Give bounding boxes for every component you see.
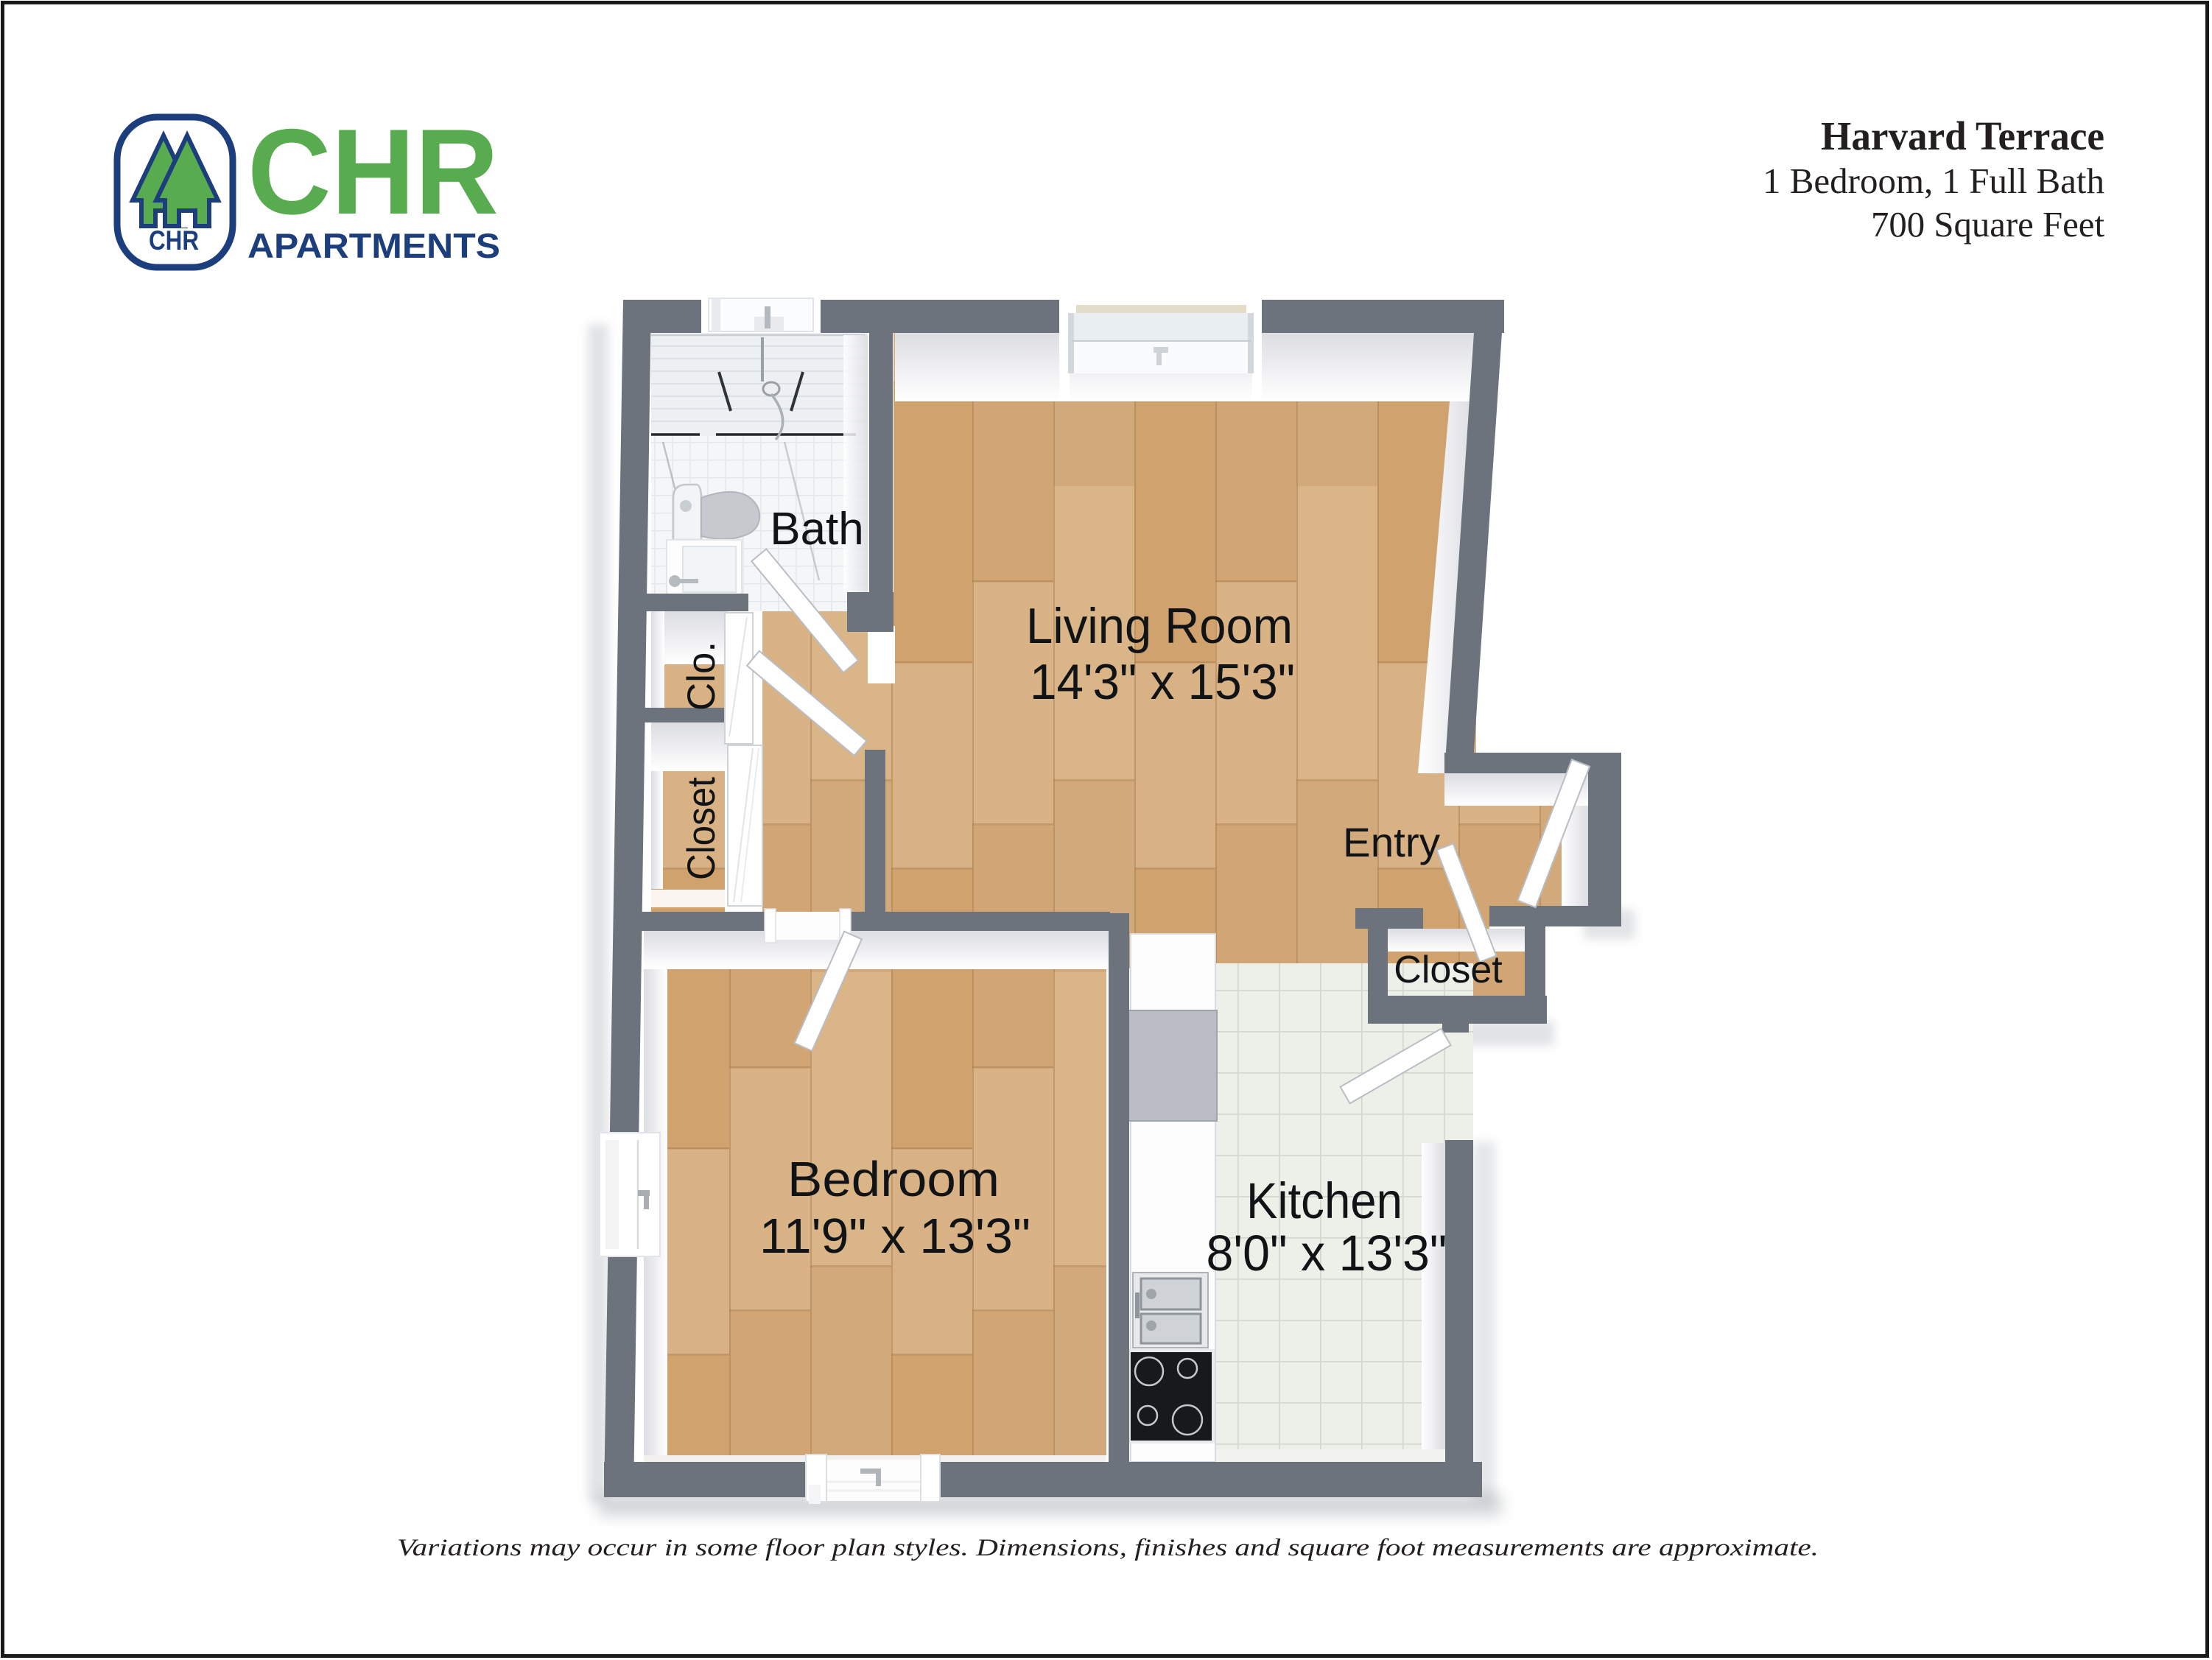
svg-text:Closet: Closet: [680, 777, 723, 880]
svg-text:Entry: Entry: [1343, 819, 1440, 865]
svg-text:CHR: CHR: [247, 104, 499, 239]
svg-text:CHR: CHR: [149, 225, 199, 256]
svg-text:700 Square Feet: 700 Square Feet: [1871, 204, 2104, 245]
svg-text:1 Bedroom, 1 Full Bath: 1 Bedroom, 1 Full Bath: [1763, 161, 2104, 201]
svg-text:Bath: Bath: [770, 504, 864, 555]
svg-text:Variations may occur in some f: Variations may occur in some floor plan …: [397, 1535, 1819, 1561]
svg-text:8'0" x 13'3": 8'0" x 13'3": [1207, 1225, 1447, 1281]
svg-text:Closet: Closet: [1394, 949, 1503, 991]
svg-text:Bedroom: Bedroom: [787, 1152, 1000, 1207]
svg-text:14'3" x 15'3": 14'3" x 15'3": [1030, 654, 1295, 710]
svg-text:APARTMENTS: APARTMENTS: [247, 226, 500, 265]
svg-text:Kitchen: Kitchen: [1246, 1172, 1402, 1229]
svg-text:11'9" x 13'3": 11'9" x 13'3": [759, 1209, 1030, 1264]
svg-text:Living Room: Living Room: [1026, 598, 1293, 654]
svg-text:Harvard Terrace: Harvard Terrace: [1821, 113, 2104, 158]
svg-text:Clo.: Clo.: [680, 641, 723, 711]
